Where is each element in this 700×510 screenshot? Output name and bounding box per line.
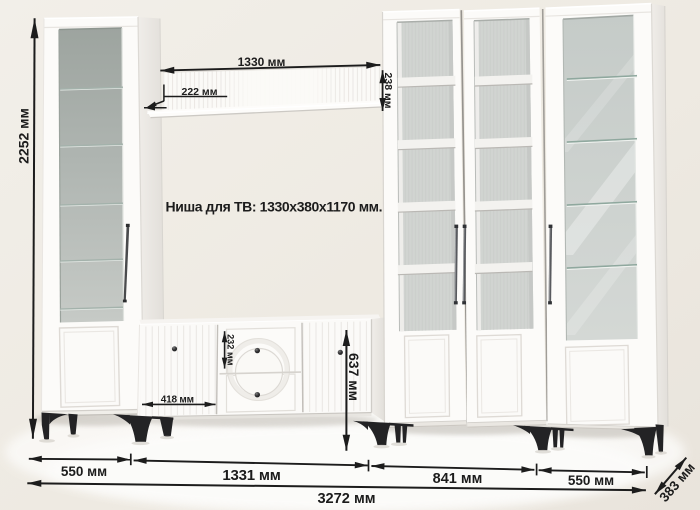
- svg-text:637 мм: 637 мм: [346, 353, 362, 401]
- svg-text:3272 мм: 3272 мм: [317, 491, 375, 507]
- svg-text:238 мм: 238 мм: [382, 73, 394, 109]
- svg-text:232 мм: 232 мм: [225, 334, 235, 366]
- svg-text:1331 мм: 1331 мм: [222, 467, 280, 484]
- svg-text:550 мм: 550 мм: [568, 473, 614, 488]
- svg-text:1330 мм: 1330 мм: [238, 55, 286, 69]
- svg-text:2252 мм: 2252 мм: [15, 108, 31, 164]
- svg-text:550 мм: 550 мм: [61, 464, 107, 479]
- svg-text:841 мм: 841 мм: [433, 471, 483, 487]
- svg-text:Ниша для ТВ: 1330х380х1170 мм.: Ниша для ТВ: 1330х380х1170 мм.: [166, 198, 383, 214]
